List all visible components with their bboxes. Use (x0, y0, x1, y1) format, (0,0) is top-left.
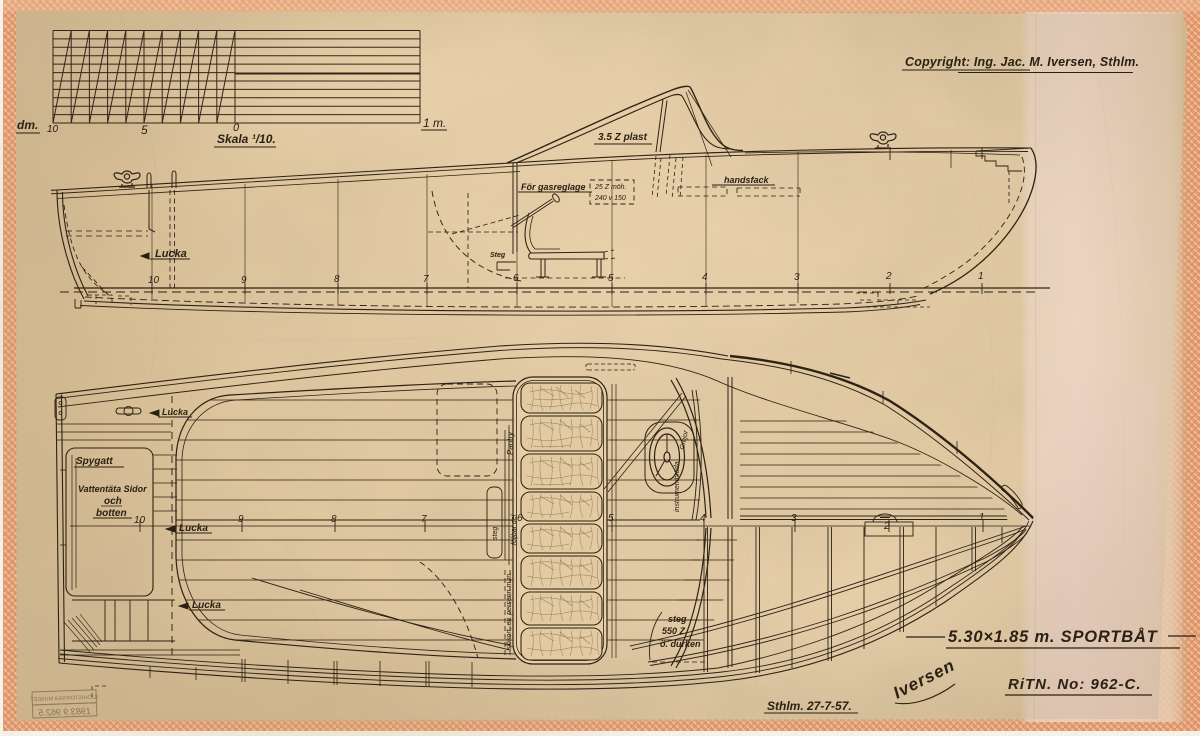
svg-text:dm.: dm. (17, 118, 38, 132)
svg-text:3: 3 (791, 513, 797, 524)
svg-text:Pantry: Pantry (506, 431, 515, 455)
svg-text:3.5 Z plast: 3.5 Z plast (598, 132, 648, 143)
svg-text:Lucka: Lucka (162, 407, 188, 417)
svg-text:och: och (104, 496, 122, 507)
svg-text:5: 5 (608, 513, 614, 524)
svg-text:Steg: Steg (490, 252, 506, 259)
svg-text:Skala ¹/10.: Skala ¹/10. (217, 132, 276, 146)
svg-text:Vattentäta Sidor: Vattentäta Sidor (78, 484, 147, 494)
svg-text:sjökort, ev. persenn m.m.: sjökort, ev. persenn m.m. (506, 572, 513, 650)
svg-text:följbar del: följbar del (511, 514, 518, 545)
svg-text:10: 10 (134, 515, 146, 526)
svg-text:4: 4 (700, 513, 706, 524)
svg-text:För gasreglage: För gasreglage (521, 182, 586, 192)
svg-text:240 v 150: 240 v 150 (594, 195, 626, 202)
svg-text:8: 8 (334, 274, 340, 285)
svg-text:RiTN. No: 962-C.: RiTN. No: 962-C. (1008, 676, 1142, 693)
svg-text:2: 2 (883, 521, 890, 532)
svg-text:5: 5 (608, 273, 614, 284)
svg-text:steg: steg (668, 614, 687, 624)
svg-text:8: 8 (331, 514, 337, 525)
svg-text:instrumentbräda: instrumentbräda (674, 461, 681, 512)
svg-text:6: 6 (513, 273, 519, 284)
svg-text:1983.9 962.5: 1983.9 962.5 (37, 706, 91, 718)
svg-text:5: 5 (141, 123, 148, 137)
svg-text:550 Z: 550 Z (662, 626, 686, 636)
svg-text:botten: botten (96, 508, 127, 519)
svg-text:5.30×1.85 m. SPORTBÅT: 5.30×1.85 m. SPORTBÅT (948, 627, 1159, 646)
svg-text:Copyright: Ing. Jac. M. Iverse: Copyright: Ing. Jac. M. Iversen, Sthlm. (905, 55, 1139, 69)
svg-text:2: 2 (885, 271, 892, 282)
svg-text:steg: steg (492, 527, 499, 540)
svg-text:ö. durken: ö. durken (660, 639, 701, 649)
svg-text:7: 7 (423, 274, 429, 285)
svg-text:9: 9 (241, 275, 247, 286)
svg-text:7: 7 (421, 514, 427, 525)
svg-text:Spygatt: Spygatt (76, 456, 113, 467)
svg-text:Lucka: Lucka (192, 600, 221, 611)
svg-text:1: 1 (978, 271, 984, 282)
svg-text:1 m.: 1 m. (423, 116, 446, 130)
svg-text:Lucka: Lucka (179, 523, 208, 534)
svg-text:Sthlm. 27-7-57.: Sthlm. 27-7-57. (767, 699, 852, 713)
svg-text:10: 10 (47, 124, 59, 135)
svg-text:Lucka: Lucka (155, 248, 187, 260)
svg-text:25 Z möh.: 25 Z möh. (594, 184, 627, 191)
svg-text:handsfack: handsfack (724, 175, 770, 185)
svg-text:4: 4 (702, 272, 708, 283)
svg-text:3: 3 (794, 272, 800, 283)
svg-text:1: 1 (979, 512, 985, 523)
svg-text:9: 9 (238, 514, 244, 525)
svg-text:10: 10 (148, 275, 160, 286)
